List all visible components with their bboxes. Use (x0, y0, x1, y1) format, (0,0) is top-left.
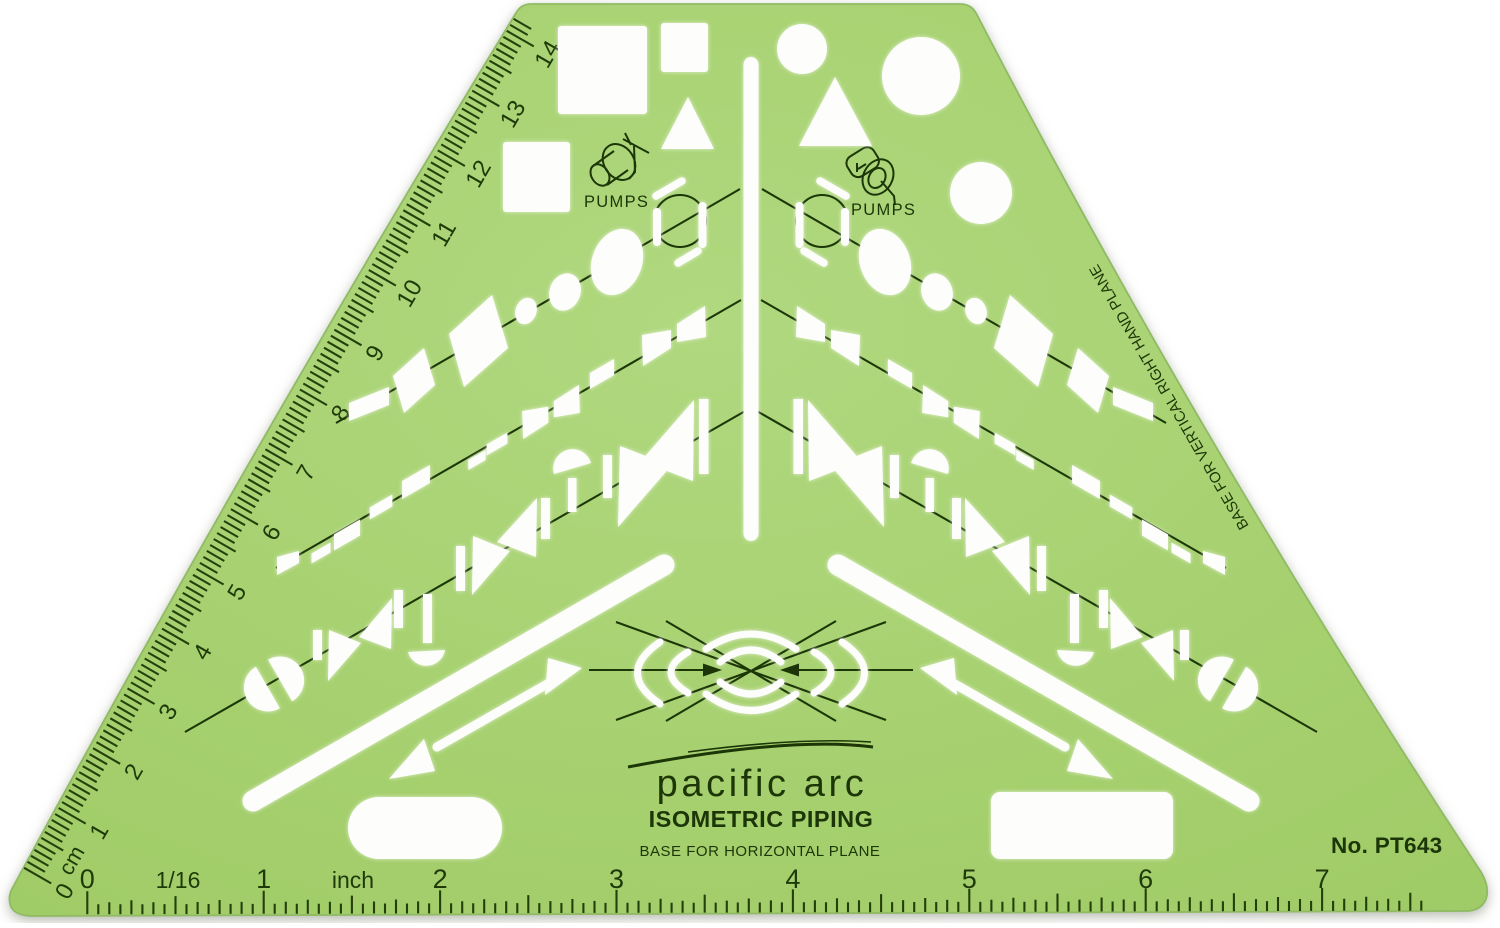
svg-text:ISOMETRIC PIPING: ISOMETRIC PIPING (649, 806, 874, 832)
svg-text:3: 3 (609, 864, 624, 894)
svg-text:BASE FOR HORIZONTAL PLANE: BASE FOR HORIZONTAL PLANE (640, 843, 881, 860)
svg-text:5: 5 (962, 864, 977, 894)
svg-text:0: 0 (80, 864, 95, 894)
svg-text:6: 6 (1138, 864, 1153, 894)
svg-text:pacific arc: pacific arc (657, 763, 868, 805)
svg-text:PUMPS: PUMPS (851, 201, 916, 219)
svg-text:No. PT643: No. PT643 (1331, 833, 1443, 858)
svg-text:PUMPS: PUMPS (584, 193, 649, 211)
svg-text:1/16: 1/16 (156, 867, 201, 893)
svg-text:1: 1 (256, 864, 271, 894)
svg-text:inch: inch (332, 867, 374, 893)
svg-text:7: 7 (1315, 864, 1330, 894)
svg-text:4: 4 (785, 864, 800, 894)
svg-text:2: 2 (433, 864, 448, 894)
